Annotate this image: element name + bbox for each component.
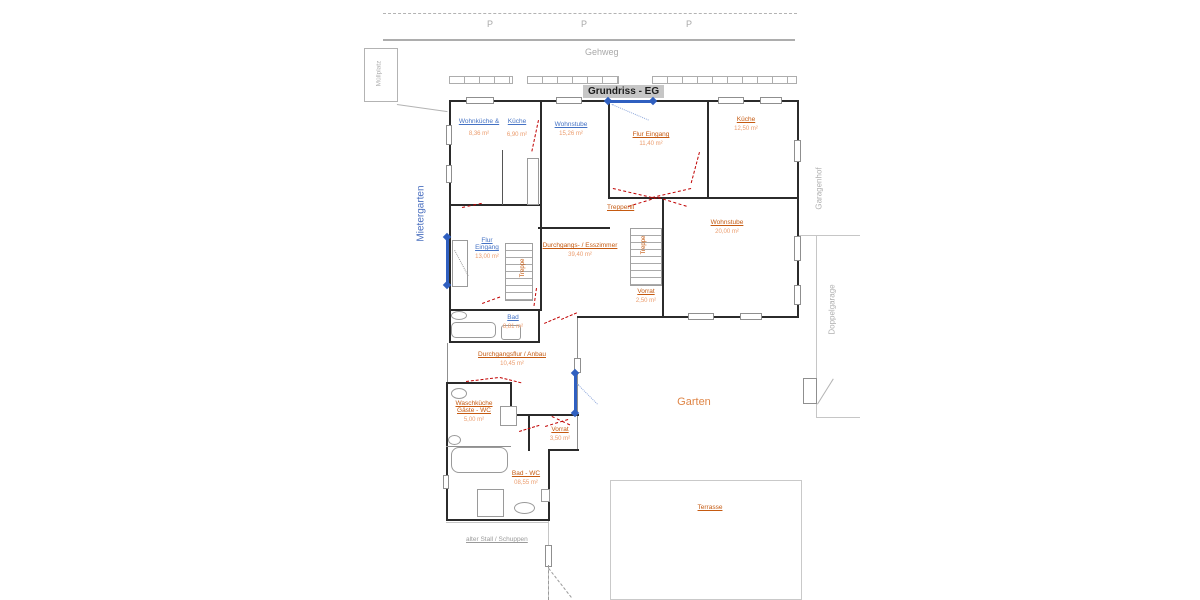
room-label-treppe-links: Treppe <box>520 253 526 283</box>
dimension-line <box>608 100 654 103</box>
room-label-treppenfl: Treppenfl <box>607 204 653 211</box>
kitchen-partition <box>502 150 503 205</box>
room-label-esszimmer: Durchgangs- / Esszimmer 39,40 m² <box>542 242 618 259</box>
sink <box>541 489 550 502</box>
door-swing-marker <box>561 312 577 320</box>
muellplatz-label: Müllplatz <box>376 54 383 94</box>
wall <box>608 100 610 199</box>
dimension-pointer-dotted <box>612 104 649 121</box>
terrasse-outline <box>610 480 802 600</box>
site-diagonal-line <box>397 104 448 112</box>
room-label-vorrat-mitte: Vorrat 2,50 m² <box>631 288 661 305</box>
property-boundary-dashed <box>383 13 797 14</box>
room-label-vorrat-unten: Vorrat 3,50 m² <box>545 426 575 443</box>
wall <box>707 100 709 199</box>
window <box>688 313 714 320</box>
wall <box>446 519 550 521</box>
wall <box>608 197 799 199</box>
window <box>443 475 449 489</box>
room-label-flur-top: Flur Eingang 11,40 m² <box>621 131 681 148</box>
window-band <box>652 76 797 84</box>
window <box>794 285 801 305</box>
window <box>466 97 494 104</box>
garten-label: Garten <box>664 396 724 408</box>
window <box>740 313 762 320</box>
room-label-treppe-rechts: Treppe <box>641 230 647 260</box>
alter-stall-label: alter Stall / Schuppen <box>466 536 528 543</box>
street-edge-line <box>383 39 795 41</box>
gehweg-label: Gehweg <box>585 47 619 57</box>
room-label-wohnstube-top: Wohnstube 15,26 m² <box>541 121 601 138</box>
dimension-endpoint <box>649 97 657 105</box>
room-label-anbau: Durchgangsflur / Anbau 10,45 m² <box>472 351 552 368</box>
door-swing-marker <box>533 288 536 306</box>
wall <box>528 414 530 451</box>
garagenhof-label: Garagenhof <box>815 159 824 219</box>
wall <box>446 382 448 521</box>
parking-label: P <box>686 19 692 29</box>
dimension-line <box>574 373 577 413</box>
room-label-bad-wc: Bad - WC 08,55 m² <box>501 470 551 487</box>
bathtub <box>451 447 508 473</box>
window-band <box>527 76 619 84</box>
room-label-kueche-klein: Küche 6,90 m² <box>497 118 537 139</box>
room-label-kueche-rechts: Küche 12,50 m² <box>716 116 776 133</box>
wall <box>548 449 579 451</box>
room-label-waschkueche: Waschküche Gäste - WC 5,00 m² <box>449 400 499 424</box>
garage-fence-line <box>797 235 860 236</box>
window <box>556 97 582 104</box>
wall <box>449 341 540 343</box>
wall <box>510 414 579 416</box>
shower <box>477 489 504 517</box>
window <box>794 236 801 261</box>
terrasse-label: Terrasse <box>680 504 740 511</box>
wall-light <box>447 343 448 383</box>
entry-door-leaf <box>452 240 468 287</box>
mietergarten-label: Mietergarten <box>416 184 427 244</box>
window <box>794 140 801 162</box>
wall <box>446 382 512 384</box>
washing-machine <box>500 406 517 426</box>
garage-bottom-line <box>816 417 860 418</box>
window <box>446 165 452 183</box>
survey-dashed-diagonal <box>548 568 572 598</box>
bathtub <box>451 322 496 338</box>
stall-window <box>545 545 552 567</box>
parking-label: P <box>581 19 587 29</box>
garage-door <box>803 378 817 404</box>
door-swing-marker <box>544 316 560 324</box>
dimension-line <box>446 237 449 285</box>
door-swing-marker <box>691 152 700 183</box>
sink <box>451 388 467 399</box>
stairs-left <box>505 243 533 301</box>
wall <box>538 309 540 343</box>
kitchen-counter <box>527 158 539 205</box>
sink <box>448 435 461 445</box>
stall-top-line <box>446 522 548 523</box>
dimension-pointer-dotted <box>577 384 598 405</box>
doppelgarage-label: Doppelgarage <box>828 275 837 345</box>
room-label-bad: Bad 8,81 m² <box>498 314 528 331</box>
garage-door-swing <box>817 379 834 405</box>
room-label-flur-links: Flur Eingang 13,00 m² <box>467 237 507 261</box>
window <box>718 97 744 104</box>
floor-plan-page: P P P Gehweg Müllplatz Mietergarten Gara… <box>0 0 1200 600</box>
parking-label: P <box>487 19 493 29</box>
wall <box>662 197 664 318</box>
window <box>760 97 782 104</box>
sink <box>451 311 467 320</box>
toilet <box>514 502 535 514</box>
window-band <box>449 76 513 84</box>
wall <box>538 227 610 229</box>
room-label-wohnstube-rechts: Wohnstube 20,00 m² <box>697 219 757 236</box>
door-swing-marker <box>482 297 500 304</box>
